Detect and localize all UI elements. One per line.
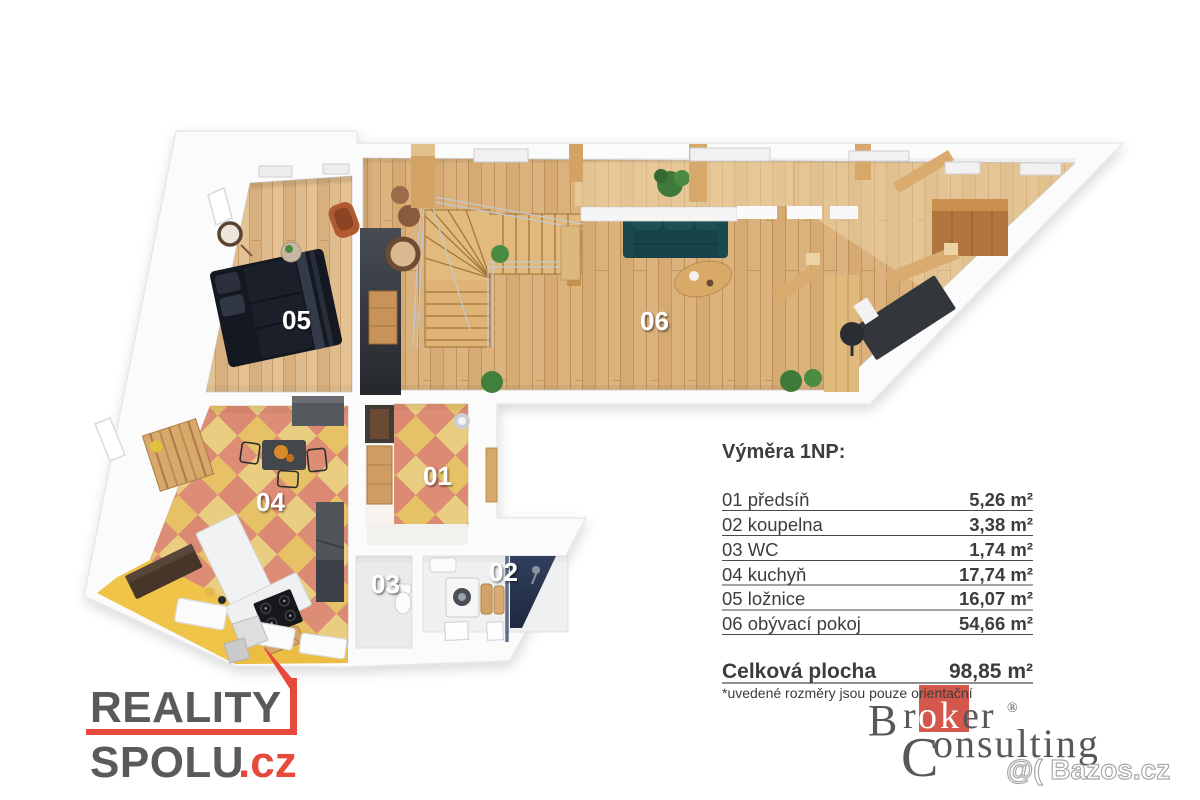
svg-text:54,66 m²: 54,66 m² <box>959 613 1033 634</box>
svg-text:Výměra 1NP:: Výměra 1NP: <box>722 441 845 463</box>
svg-text:02: 02 <box>489 557 518 587</box>
svg-text:3,38 m²: 3,38 m² <box>969 514 1033 535</box>
svg-text:@( Bazos.cz: @( Bazos.cz <box>1006 754 1170 785</box>
svg-text:16,07 m²: 16,07 m² <box>959 588 1033 609</box>
svg-text:Celková plocha: Celková plocha <box>722 660 876 683</box>
svg-text:SPOLU: SPOLU <box>90 738 244 787</box>
svg-text:04 kuchyň: 04 kuchyň <box>722 564 806 585</box>
svg-text:05: 05 <box>282 305 311 335</box>
svg-text:01: 01 <box>423 461 452 491</box>
svg-text:03: 03 <box>371 569 400 599</box>
svg-text:01 předsíň: 01 předsíň <box>722 489 809 510</box>
svg-text:05 ložnice: 05 ložnice <box>722 588 805 609</box>
svg-text:06 obývací pokoj: 06 obývací pokoj <box>722 613 861 634</box>
svg-text:04: 04 <box>256 487 285 517</box>
svg-text:B: B <box>868 696 897 745</box>
svg-text:1,74 m²: 1,74 m² <box>969 539 1033 560</box>
svg-text:®: ® <box>1007 701 1018 716</box>
svg-text:.cz: .cz <box>238 738 297 787</box>
svg-text:02 koupelna: 02 koupelna <box>722 514 824 535</box>
svg-text:5,26 m²: 5,26 m² <box>969 489 1033 510</box>
svg-text:06: 06 <box>640 306 669 336</box>
svg-text:REALITY: REALITY <box>90 683 282 732</box>
svg-text:98,85 m²: 98,85 m² <box>949 660 1033 683</box>
svg-text:17,74 m²: 17,74 m² <box>959 564 1033 585</box>
svg-text:03 WC: 03 WC <box>722 539 779 560</box>
